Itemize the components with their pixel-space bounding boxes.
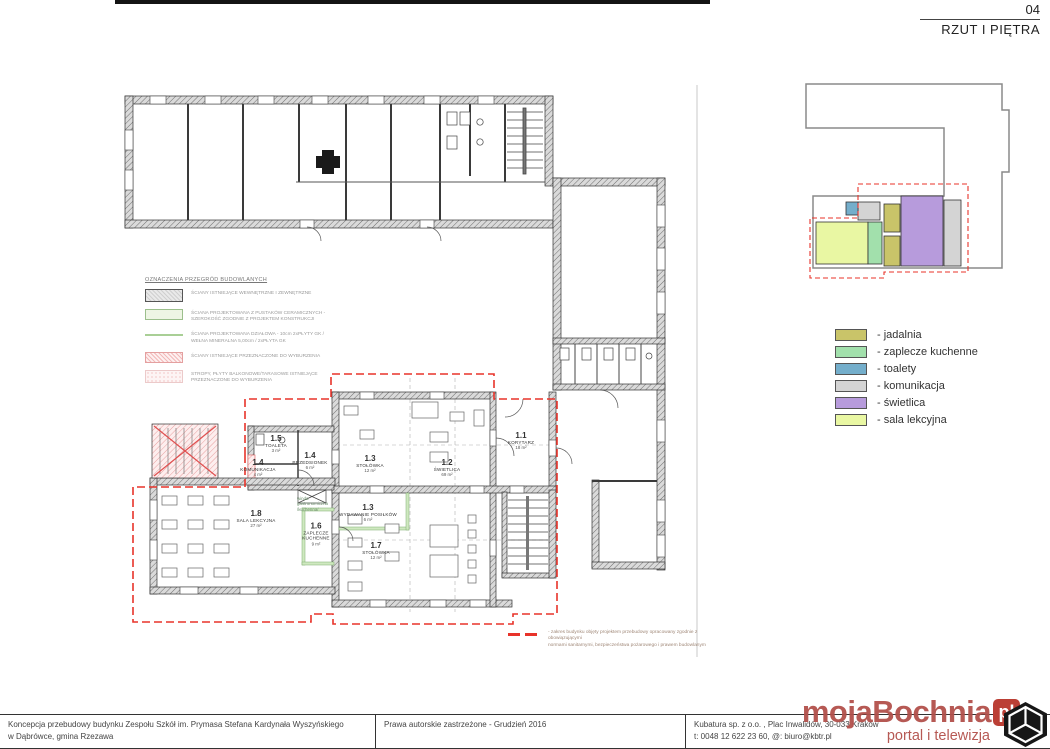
keyplan-komunikacja-2 [858, 202, 880, 220]
color-legend-item: - świetlica [835, 397, 1025, 409]
color-legend-item: - komunikacja [835, 380, 1025, 392]
keyplan-jadalnia-2 [884, 236, 900, 266]
wall-legend-item: STROPY, PŁYTY BALKONOWE/TARASOWE ISTNIEJ… [145, 370, 345, 384]
cube-logo-icon [1002, 701, 1049, 748]
watermark: mojaBochnia pl portal i telewizja [802, 694, 1020, 744]
upper-wing-walls [125, 96, 553, 228]
wall-legend-label: ŚCIANA PROJEKTOWANA DZIAŁOWA - 10cm 2xPŁ… [191, 330, 336, 344]
wall-legend-label: ŚCIANA PROJEKTOWANA Z PUSTAKÓW CERAMICZN… [191, 309, 336, 323]
demolition-slab-swatch [145, 370, 183, 383]
keyplan-swietlica [901, 196, 943, 266]
new-ceramic-wall-swatch [145, 309, 183, 320]
color-legend-label: - komunikacja [877, 380, 945, 392]
bathroom-fixtures [447, 112, 483, 149]
watermark-brand: mojaBochnia [802, 694, 991, 730]
keyplan-zaplecze [868, 222, 882, 264]
keyplan-komunikacja-1 [944, 200, 961, 266]
color-legend-item: - sala lekcyjna [835, 414, 1025, 426]
color-legend-label: - toalety [877, 363, 916, 375]
right-wing-walls [553, 178, 665, 570]
color-legend-label: - świetlica [877, 397, 925, 409]
dumbwaiter-note: winda gastronomiczna /kuchenna/ [297, 496, 328, 512]
color-legend-label: - sala lekcyjna [877, 414, 947, 426]
swietlica-swatch [835, 397, 867, 409]
sala-lekcyjna-swatch [835, 414, 867, 426]
color-legend-label: - jadalnia [877, 329, 922, 341]
wall-legend-title: OZNACZENIA PRZEGRÓD BUDOWLANYCH [145, 277, 345, 283]
wall-legend-item: ŚCIANY ISTNIEJĄCE WEWNĘTRZNE I ZEWNĘTRZN… [145, 289, 345, 302]
scope-note: - zakres budynku objęty projektem przebu… [508, 630, 718, 649]
keyplan-sala-lekcyjna [816, 222, 868, 264]
wall-legend-item: ŚCIANA PROJEKTOWANA DZIAŁOWA - 10cm 2xPŁ… [145, 330, 345, 344]
wall-legend: OZNACZENIA PRZEGRÓD BUDOWLANYCH ŚCIANY I… [145, 277, 345, 391]
new-partition-wall-swatch [145, 334, 183, 336]
zaplecze-kuchenne-swatch [835, 346, 867, 358]
color-legend-item: - jadalnia [835, 329, 1025, 341]
keyplan-toalety [846, 202, 858, 215]
wall-legend-label: STROPY, PŁYTY BALKONOWE/TARASOWE ISTNIEJ… [191, 370, 336, 384]
color-legend: - jadalnia - zaplecze kuchenne - toalety… [835, 329, 1025, 431]
stair-lower [502, 490, 556, 578]
stair-demolished [152, 424, 218, 478]
red-dash-sample [508, 633, 542, 636]
watermark-tagline: portal i telewizja [802, 728, 990, 744]
keyplan-jadalnia-1 [884, 204, 900, 232]
jadalnia-swatch [835, 329, 867, 341]
wall-legend-item: ŚCIANA PROJEKTOWANA Z PUSTAKÓW CERAMICZN… [145, 309, 345, 323]
key-plan [806, 84, 1009, 278]
wall-legend-label: ŚCIANY ISTNIEJĄCE PRZEZNACZONE DO WYBURZ… [191, 352, 320, 360]
copyright-note: Prawa autorskie zastrzeżone - Grudzień 2… [375, 715, 685, 748]
wall-legend-label: ŚCIANY ISTNIEJĄCE WEWNĘTRZNE I ZEWNĘTRZN… [191, 289, 311, 297]
komunikacja-swatch [835, 380, 867, 392]
color-legend-item: - toalety [835, 363, 1025, 375]
wall-legend-item: ŚCIANY ISTNIEJĄCE PRZEZNACZONE DO WYBURZ… [145, 352, 345, 363]
project-title: Koncepcja przebudowy budynku Zespołu Szk… [0, 715, 375, 748]
color-legend-label: - zaplecze kuchenne [877, 346, 978, 358]
existing-wall-swatch [145, 289, 183, 302]
scope-note-text: - zakres budynku objęty projektem przebu… [548, 630, 718, 649]
toalety-swatch [835, 363, 867, 375]
demolition-wall-swatch [145, 352, 183, 363]
color-legend-item: - zaplecze kuchenne [835, 346, 1025, 358]
stair-upper [507, 108, 543, 174]
